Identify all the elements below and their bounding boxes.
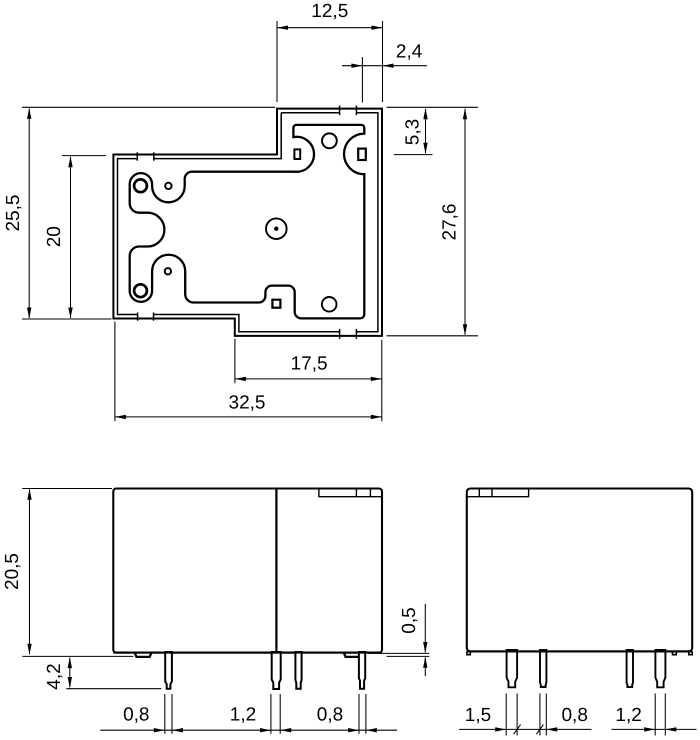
svg-text:1,2: 1,2 — [615, 705, 641, 726]
svg-text:27,6: 27,6 — [440, 204, 461, 241]
svg-text:32,5: 32,5 — [229, 393, 266, 414]
svg-text:0,5: 0,5 — [399, 607, 420, 633]
svg-text:20: 20 — [44, 226, 65, 247]
svg-text:20,5: 20,5 — [2, 553, 23, 590]
svg-text:0,8: 0,8 — [317, 705, 343, 726]
svg-text:12,5: 12,5 — [311, 1, 348, 22]
svg-text:4,2: 4,2 — [44, 663, 65, 689]
svg-text:0,8: 0,8 — [123, 705, 149, 726]
svg-text:0,8: 0,8 — [561, 705, 587, 726]
svg-text:25,5: 25,5 — [3, 195, 24, 232]
svg-text:5,3: 5,3 — [402, 119, 423, 145]
svg-text:2,4: 2,4 — [396, 42, 423, 63]
svg-text:17,5: 17,5 — [291, 353, 328, 374]
svg-text:1,5: 1,5 — [465, 705, 491, 726]
svg-text:1,2: 1,2 — [230, 705, 256, 726]
